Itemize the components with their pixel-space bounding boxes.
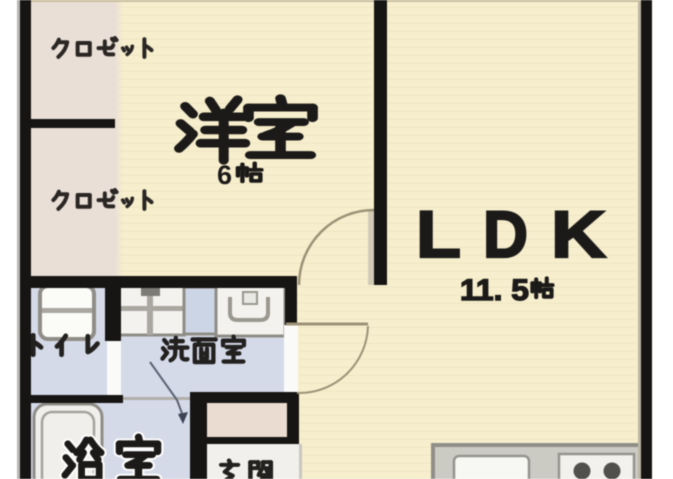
svg-text:6: 6 xyxy=(217,160,232,190)
svg-text:K: K xyxy=(551,197,606,271)
svg-text:11. 5: 11. 5 xyxy=(460,274,529,307)
svg-text:L: L xyxy=(416,197,461,271)
svg-text:D: D xyxy=(483,197,528,271)
